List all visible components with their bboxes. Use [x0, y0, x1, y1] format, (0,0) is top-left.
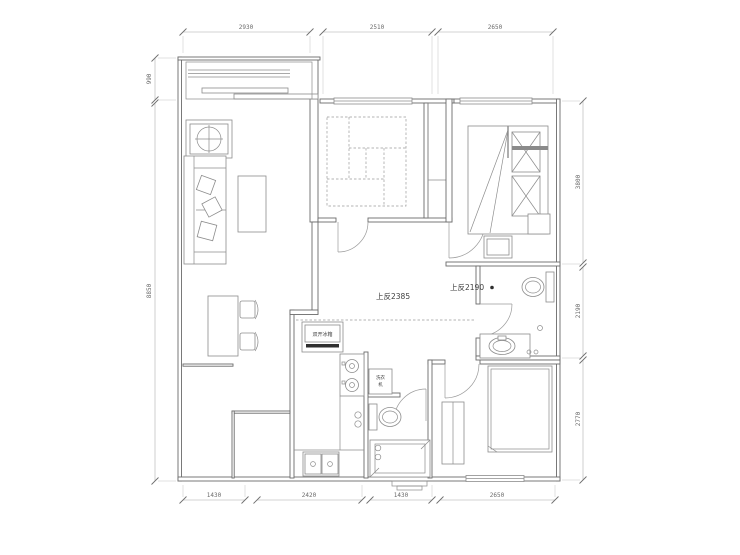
dimension-chain-right: 3800 2190 2770 — [562, 98, 587, 484]
floor-drain — [538, 326, 543, 331]
dimension-chain-left: 990 8850 — [146, 55, 176, 485]
toilet — [522, 272, 554, 302]
toilet — [369, 404, 401, 430]
bed-pillow — [512, 176, 540, 216]
washing-machine-area: 洗衣 机 — [369, 369, 392, 394]
shower-area — [370, 440, 430, 477]
balcony — [186, 62, 312, 99]
washer-label-line2: 机 — [378, 381, 383, 388]
dim-right-3: 2770 — [575, 411, 582, 426]
dim-bottom-4: 2650 — [490, 492, 505, 499]
dim-left-2: 8850 — [146, 283, 153, 298]
floor-plan-page: 2930 2510 2650 1430 2420 1430 2650 — [0, 0, 740, 555]
coffee-table — [238, 176, 266, 232]
floor-plan-drawing: 2930 2510 2650 1430 2420 1430 2650 — [0, 0, 740, 555]
dim-right-2: 2190 — [575, 303, 582, 318]
kitchen: 双开冰箱 — [294, 322, 364, 476]
bathroom-second — [369, 404, 430, 477]
headboard-shelf — [512, 146, 548, 150]
dim-bottom-2: 2420 — [302, 492, 317, 499]
tatami-window — [334, 98, 412, 104]
dim-top-1: 2930 — [239, 24, 254, 31]
gas-stove — [340, 354, 364, 396]
dim-left-1: 990 — [146, 73, 153, 84]
bedroom2-window — [466, 476, 524, 482]
bedroom1-window — [460, 98, 532, 104]
tatami-room — [327, 117, 406, 206]
dim-top-3: 2650 — [488, 24, 503, 31]
entry-threshold — [392, 481, 427, 490]
kitchen-sink — [303, 452, 339, 476]
bedroom-master — [468, 126, 550, 258]
dimension-chain-bottom: 1430 2420 1430 2650 — [180, 485, 559, 504]
dim-bottom-1: 1430 — [207, 492, 222, 499]
vanity-counter — [480, 334, 530, 358]
fridge-label: 双开冰箱 — [312, 331, 332, 338]
balcony-sliding-door — [202, 88, 318, 99]
washer-label-line1: 洗衣 — [376, 374, 385, 381]
side-table — [528, 214, 550, 234]
tatami-door-arc — [338, 222, 368, 252]
ceiling-notes: 上反2385 上反2190 — [296, 282, 494, 320]
living-room — [184, 120, 266, 264]
dim-top-2: 2510 — [370, 24, 385, 31]
sofa — [184, 156, 226, 264]
faucet — [498, 336, 506, 340]
nightstand — [484, 236, 512, 258]
beam-note-right: 上反2190 — [450, 282, 484, 292]
dining-chair — [240, 300, 258, 319]
beam-note-left: 上反2385 — [376, 291, 410, 301]
bathroom1-door-arc — [480, 304, 512, 336]
sofa-pillow — [197, 221, 217, 241]
bedroom2-door-arc — [445, 364, 479, 398]
dining-chair — [240, 332, 258, 351]
bathroom-main — [480, 272, 554, 358]
refrigerator: 双开冰箱 — [302, 322, 343, 352]
cabinet-ac-unit — [186, 120, 232, 158]
bed-second — [488, 366, 552, 452]
balcony-window — [188, 70, 290, 77]
wardrobe — [442, 402, 464, 464]
beam-note-leader-dot — [490, 286, 494, 290]
dining-area — [208, 296, 258, 356]
dim-bottom-3: 1430 — [394, 492, 409, 499]
dim-right-1: 3800 — [575, 174, 582, 189]
bedroom-second — [442, 366, 552, 464]
tatami-platform — [327, 117, 406, 206]
bed-pillow — [512, 132, 540, 172]
dining-table — [208, 296, 238, 356]
